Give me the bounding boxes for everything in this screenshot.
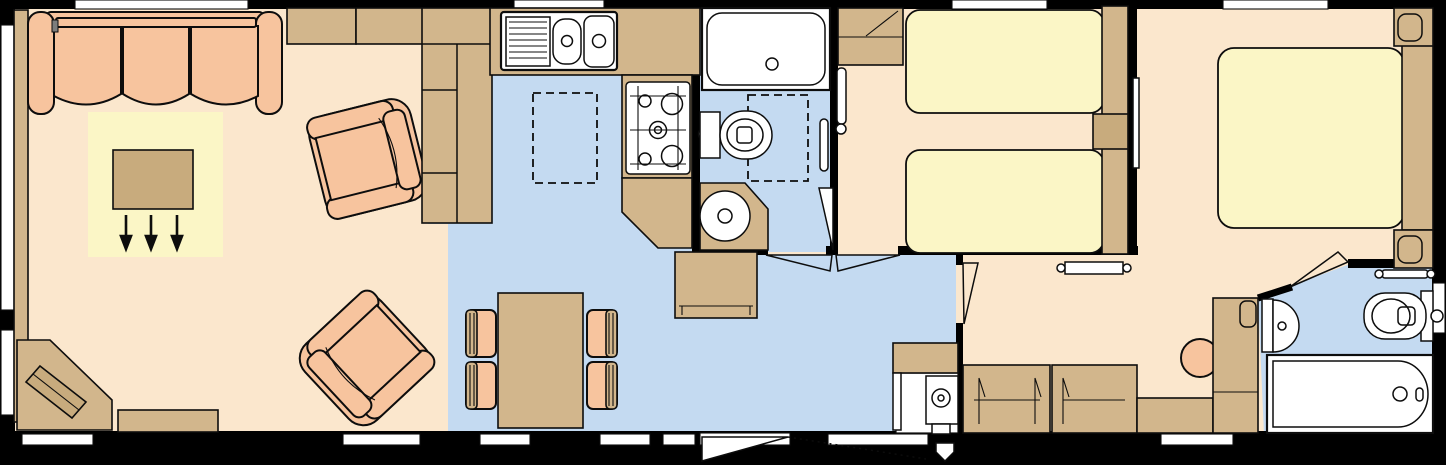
towel-rail: [820, 119, 828, 171]
wall-kitchen-bathroom: [692, 72, 700, 252]
low-unit: [118, 410, 218, 432]
dining-chair: [587, 310, 617, 357]
radiator: [837, 68, 846, 124]
chest-of-drawers: [963, 365, 1050, 433]
radiator-valve: [1123, 264, 1131, 272]
sofa-cushion: [54, 26, 121, 105]
window: [828, 434, 928, 445]
window: [1433, 283, 1445, 333]
bathtub: [702, 8, 830, 90]
dining-chair: [587, 362, 617, 409]
towel-rail-end: [1375, 270, 1383, 278]
towel-rail: [1382, 270, 1428, 278]
flush-button: [1431, 310, 1443, 322]
dining-chair: [466, 310, 496, 357]
sink-bowl: [553, 19, 581, 64]
overhead-locker: [287, 8, 356, 44]
towel-rail-end: [1427, 270, 1435, 278]
wall-hall-master-a: [956, 255, 963, 265]
window: [952, 0, 1047, 9]
mirror: [1133, 78, 1139, 168]
toilet: [1364, 291, 1443, 341]
dining-table: [498, 293, 583, 428]
boiler: [926, 376, 958, 424]
dressing-table: [1137, 398, 1213, 433]
cupboard-door-frame: [893, 373, 901, 430]
dining-chair: [466, 362, 496, 409]
window: [75, 0, 248, 9]
window: [600, 434, 650, 445]
drainer: [506, 17, 550, 66]
toilet: [699, 111, 773, 159]
sofa-cushion: [191, 26, 258, 105]
window: [343, 434, 420, 445]
window: [22, 434, 93, 445]
double-bed: [1218, 48, 1404, 228]
single-bed: [906, 150, 1104, 253]
basin-vanity: [1262, 299, 1273, 352]
floorplan-canvas: [0, 0, 1446, 465]
radiator: [1065, 262, 1123, 274]
sink-with-drainer: [501, 12, 617, 70]
coffee-table: [113, 150, 193, 209]
cupboard-shelf: [893, 343, 958, 373]
sofa-arm-left: [28, 12, 54, 114]
single-bed: [906, 10, 1104, 113]
overhead-locker: [356, 8, 425, 44]
window: [1, 330, 14, 415]
freestanding-unit: [675, 252, 757, 318]
window: [1223, 0, 1328, 9]
bedside-shelf: [1093, 114, 1128, 149]
chest-of-drawers: [1052, 365, 1137, 433]
window: [480, 434, 530, 445]
sink-bowl: [584, 16, 614, 67]
radiator-valve: [836, 124, 846, 134]
cistern: [700, 112, 720, 158]
corner-washbasin: [700, 191, 750, 241]
toilet-pan: [720, 111, 772, 159]
sofa-cushion: [123, 26, 189, 105]
radiator-valve: [1057, 264, 1065, 272]
sofa-arm-right: [256, 12, 282, 114]
boiler-pipe: [932, 424, 950, 434]
sofa-detail: [52, 20, 58, 32]
headboard: [1402, 44, 1433, 230]
window: [663, 434, 695, 445]
window: [1161, 434, 1233, 445]
floorplan-svg: [0, 0, 1446, 465]
gas-hob: [626, 82, 690, 174]
sofa: [28, 12, 282, 114]
sofa-back-rail: [56, 18, 256, 27]
bathtub: [1267, 355, 1433, 433]
wardrobe: [1213, 298, 1258, 433]
window: [1, 25, 14, 310]
